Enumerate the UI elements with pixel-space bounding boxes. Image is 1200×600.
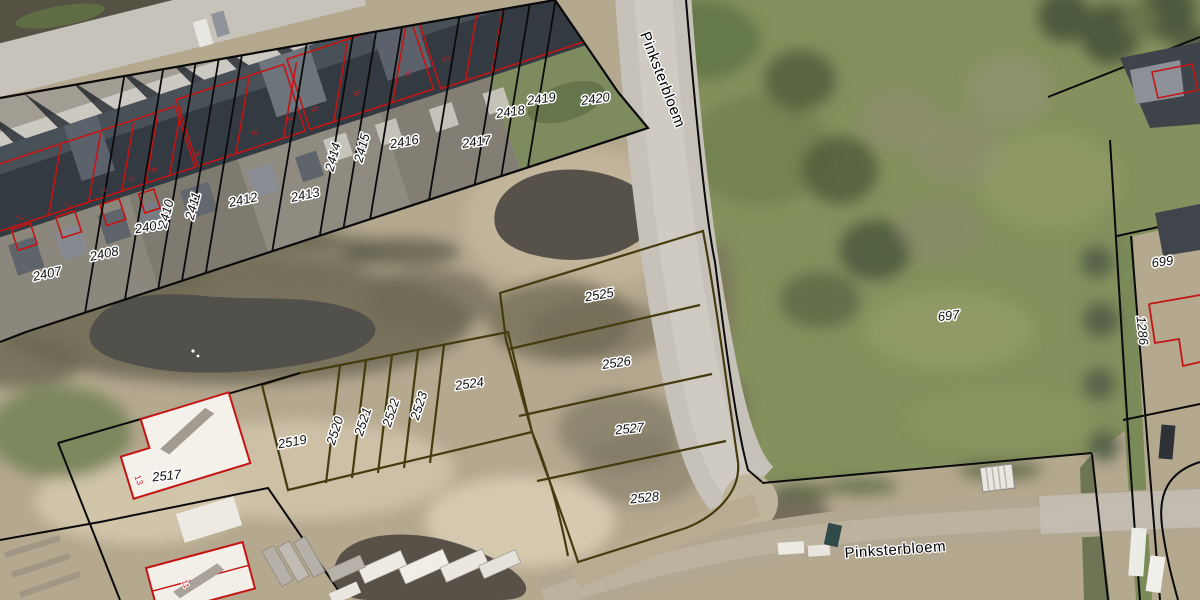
duck	[191, 349, 194, 352]
parcel-label-699: 699	[1151, 253, 1175, 271]
parcel-label-2528: 2528	[628, 488, 660, 506]
tree	[1081, 246, 1113, 278]
road-east-segment	[1040, 508, 1200, 515]
tree	[1089, 431, 1119, 461]
light-grass	[910, 390, 1090, 450]
parcel-label-2517: 2517	[150, 466, 182, 484]
parcel-label-1286: 1286	[1134, 315, 1152, 346]
scrub-patch	[530, 300, 670, 360]
dark-van	[1159, 424, 1176, 459]
parcel-label-697: 697	[937, 307, 961, 324]
bush-row	[340, 238, 460, 266]
hedge	[826, 477, 898, 495]
tree	[1122, 2, 1158, 38]
bare-trees	[896, 200, 984, 260]
tree-shadow	[764, 50, 836, 110]
field-shed	[980, 464, 1015, 492]
light-grass	[980, 130, 1120, 230]
van	[808, 544, 831, 557]
tree	[1083, 302, 1119, 338]
parcel-label-2527: 2527	[613, 419, 645, 437]
light-grass	[865, 290, 1035, 370]
tree	[1083, 368, 1115, 400]
tree-shadow	[780, 272, 860, 328]
bare-trees	[968, 56, 1052, 124]
shed	[980, 464, 1015, 492]
tree-shadow	[802, 136, 878, 204]
aerial-map[interactable]: 70 72 74 76 78 80 82 84 86 88 90 92	[0, 0, 1200, 600]
roof-east	[1155, 204, 1200, 256]
map-viewport[interactable]: 70 72 74 76 78 80 82 84 86 88 90 92	[0, 0, 1200, 600]
pond-depth	[130, 310, 320, 354]
van	[778, 541, 805, 555]
duck	[197, 355, 200, 358]
